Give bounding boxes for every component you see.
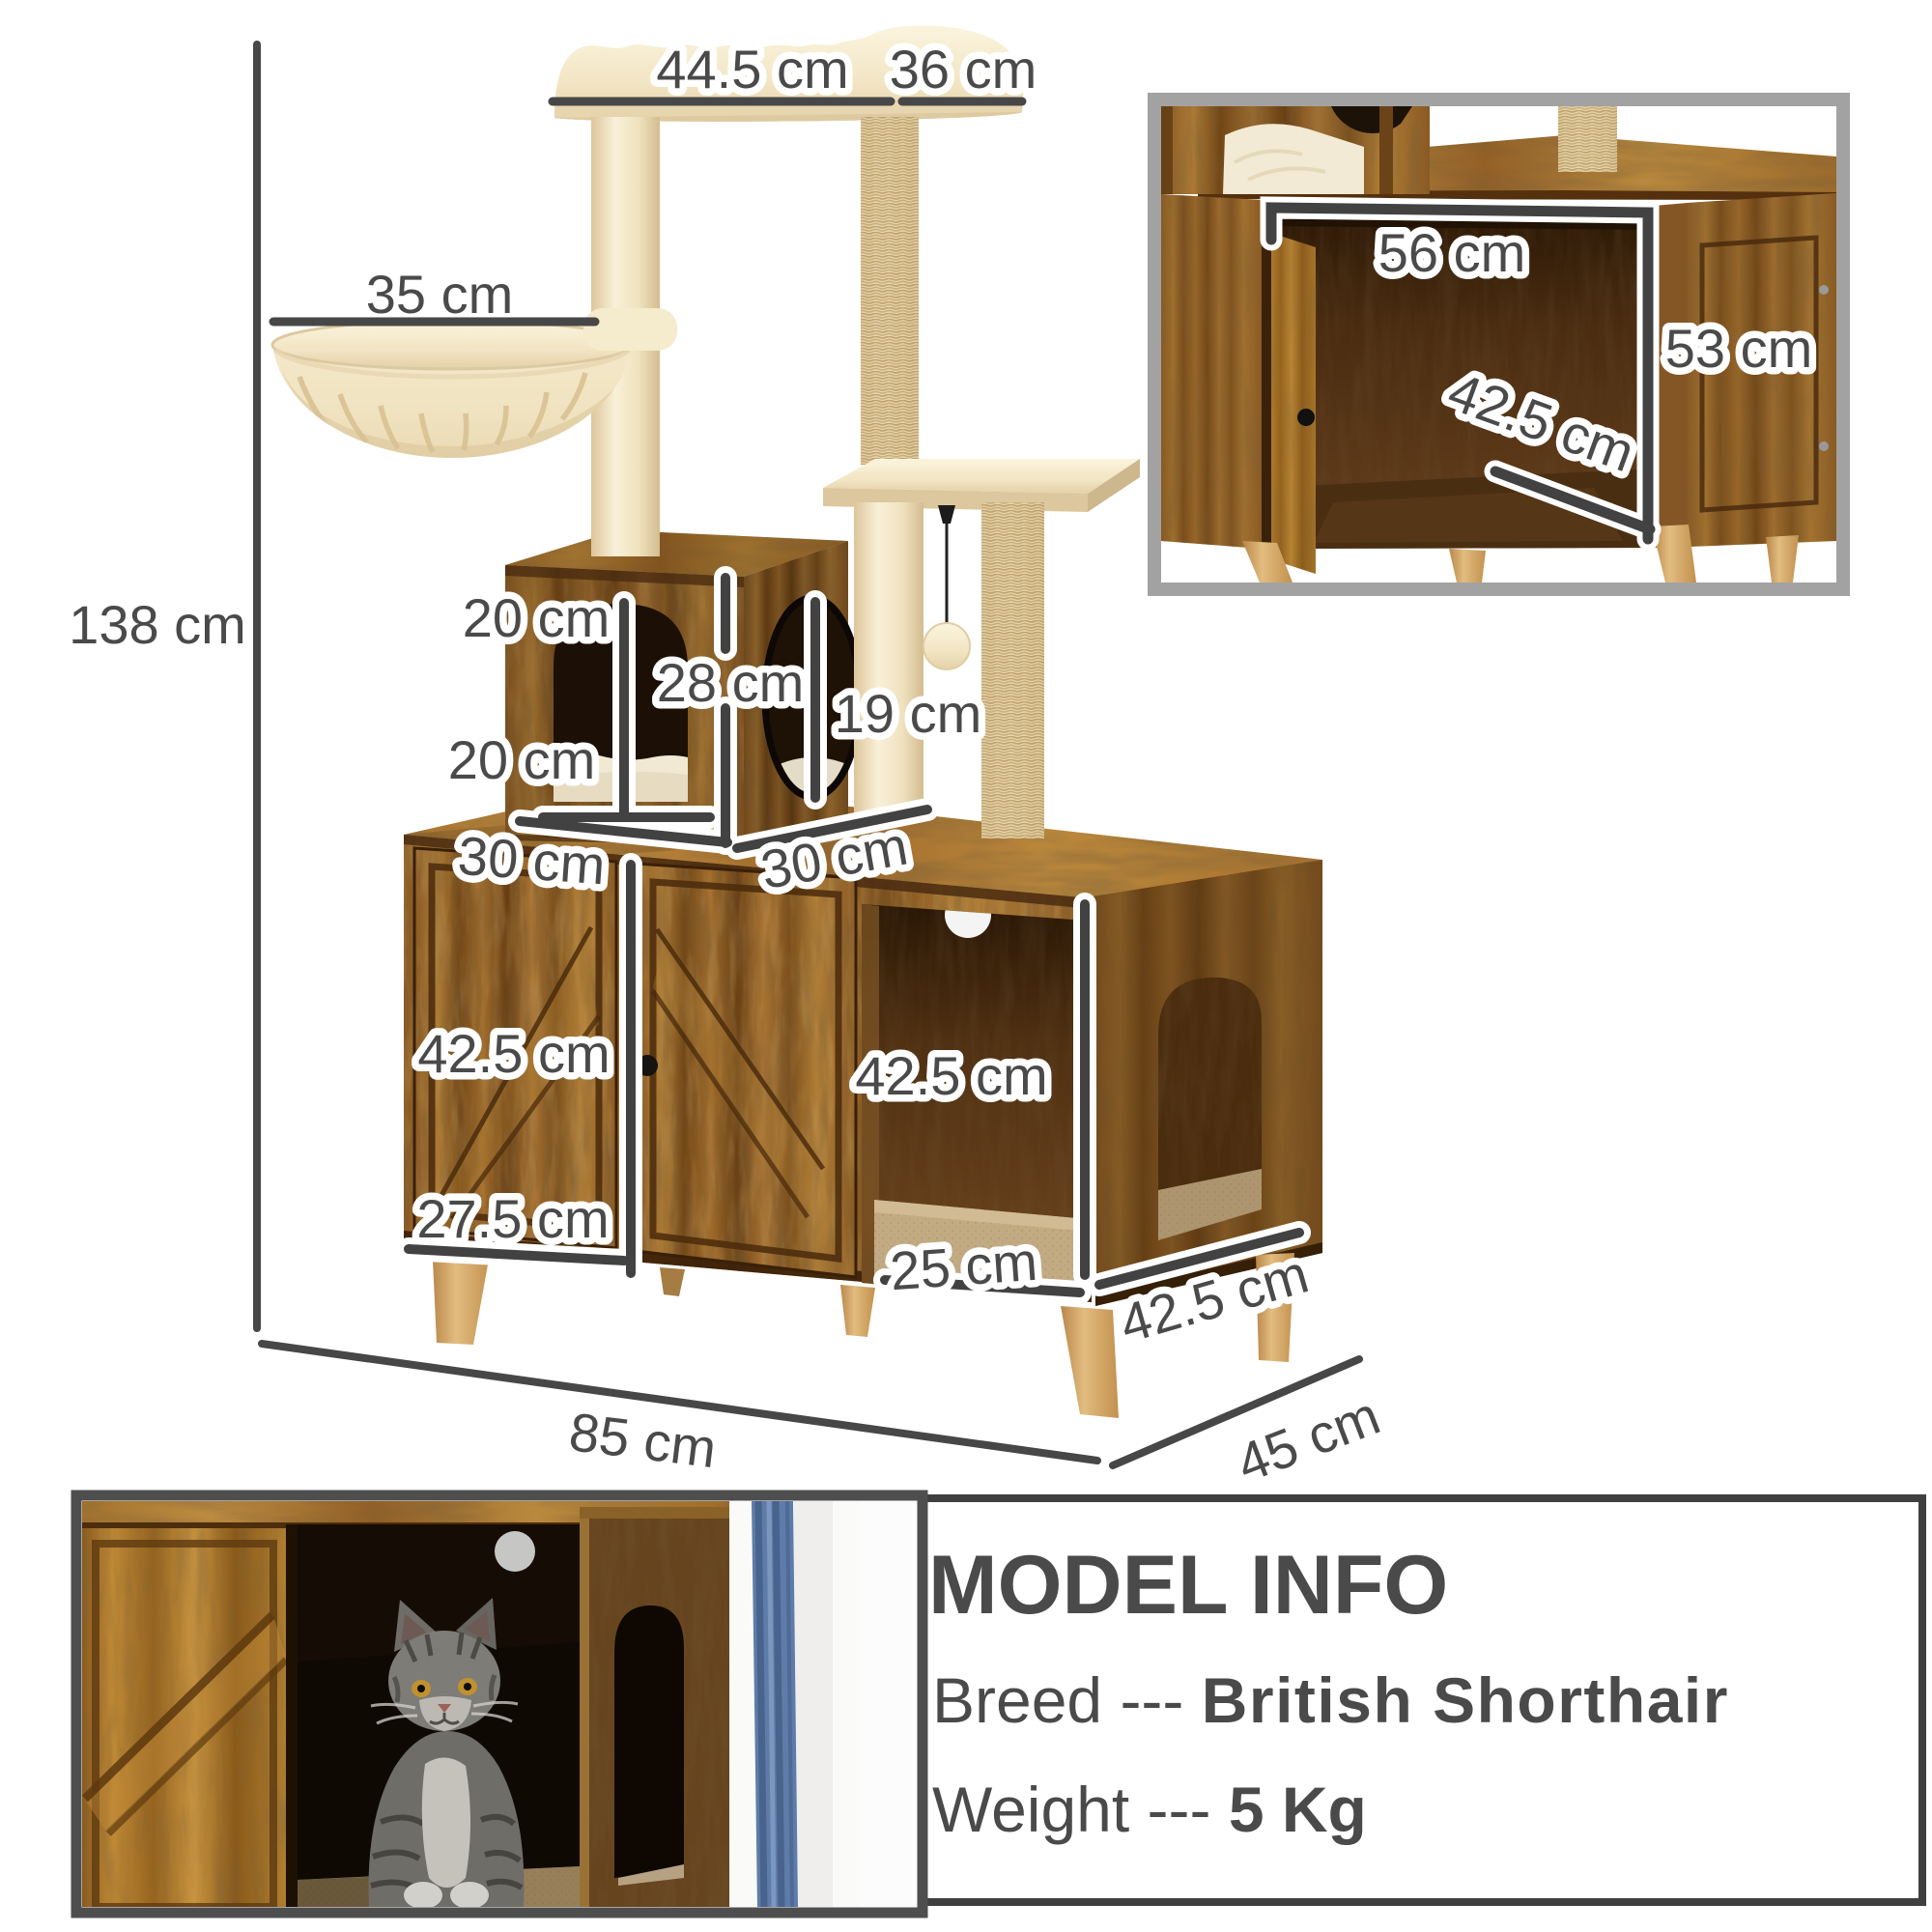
svg-text:44.5 cm: 44.5 cm — [656, 39, 848, 99]
svg-text:27.5 cm: 27.5 cm — [416, 1188, 609, 1249]
svg-text:138 cm: 138 cm — [69, 594, 246, 655]
svg-text:28 cm: 28 cm — [657, 652, 805, 713]
svg-text:42.5 cm: 42.5 cm — [417, 1023, 610, 1084]
svg-text:53 cm: 53 cm — [1665, 318, 1813, 379]
svg-text:20 cm: 20 cm — [448, 729, 596, 790]
svg-text:Weight --- 5 Kg: Weight --- 5 Kg — [932, 1774, 1367, 1845]
svg-text:Breed --- British Shorthair: Breed --- British Shorthair — [932, 1664, 1729, 1736]
svg-text:30 cm: 30 cm — [456, 825, 608, 895]
svg-text:56 cm: 56 cm — [1378, 222, 1526, 283]
svg-text:19 cm: 19 cm — [835, 683, 982, 744]
svg-text:35 cm: 35 cm — [366, 264, 514, 325]
svg-text:36 cm: 36 cm — [890, 39, 1037, 99]
svg-text:42.5 cm: 42.5 cm — [855, 1045, 1047, 1106]
svg-text:MODEL INFO: MODEL INFO — [928, 1539, 1448, 1632]
svg-text:20 cm: 20 cm — [463, 587, 611, 648]
svg-text:25 cm: 25 cm — [888, 1231, 1039, 1301]
